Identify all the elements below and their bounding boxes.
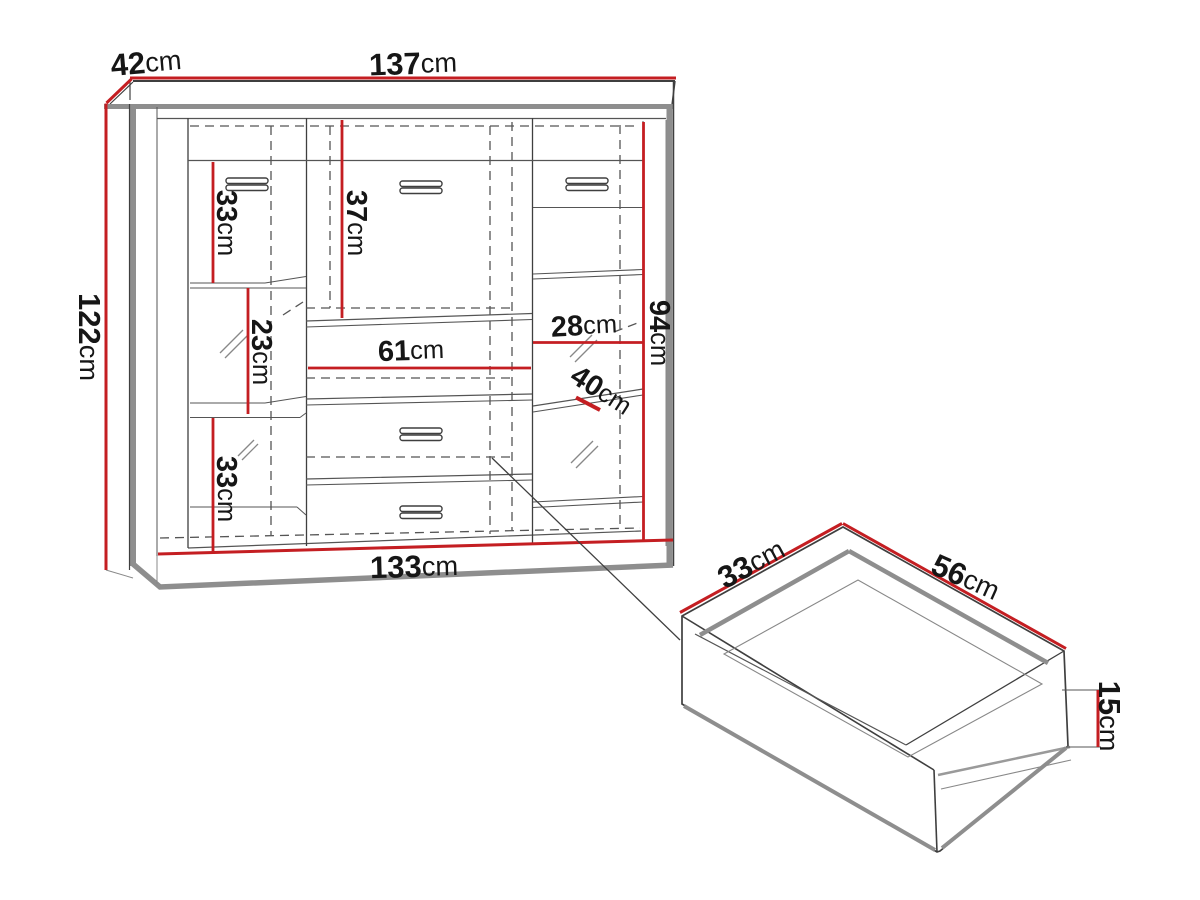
- dim-label-depth: 42cm: [109, 41, 183, 82]
- right-column-shelves: [533, 208, 643, 508]
- handle-icon: [226, 178, 268, 191]
- cabinet-top-panel: [104, 80, 675, 107]
- dim-label-flap-height: 37cm: [340, 190, 372, 256]
- handle-icon: [400, 428, 442, 441]
- dim-label-shelf-depth: 40cm: [564, 360, 637, 423]
- leader-line: [492, 458, 680, 640]
- dim-label-left-middle-section: 23cm: [245, 319, 277, 385]
- furniture-dimension-diagram: 42cm 137cm 122cm 33cm 37cm 23cm 61cm 28c…: [0, 0, 1200, 900]
- dim-label-middle-width: 61cm: [377, 334, 444, 368]
- dim-label-drawer-height: 15cm: [1093, 681, 1128, 752]
- dim-label-left-bottom-section: 33cm: [210, 456, 242, 522]
- handle-icon: [400, 506, 442, 519]
- diagram-svg: 42cm 137cm 122cm 33cm 37cm 23cm 61cm 28c…: [0, 0, 1200, 900]
- dim-label-interior-height: 94cm: [643, 300, 675, 366]
- handle-icon: [400, 181, 442, 194]
- handle-icon: [566, 178, 608, 191]
- dim-label-width-bottom: 133cm: [370, 547, 459, 584]
- dim-label-left-top-section: 33cm: [210, 190, 242, 256]
- dim-label-height: 122cm: [73, 293, 108, 381]
- dim-label-width-top: 137cm: [368, 44, 457, 82]
- dim-label-right-section-width: 28cm: [550, 308, 618, 343]
